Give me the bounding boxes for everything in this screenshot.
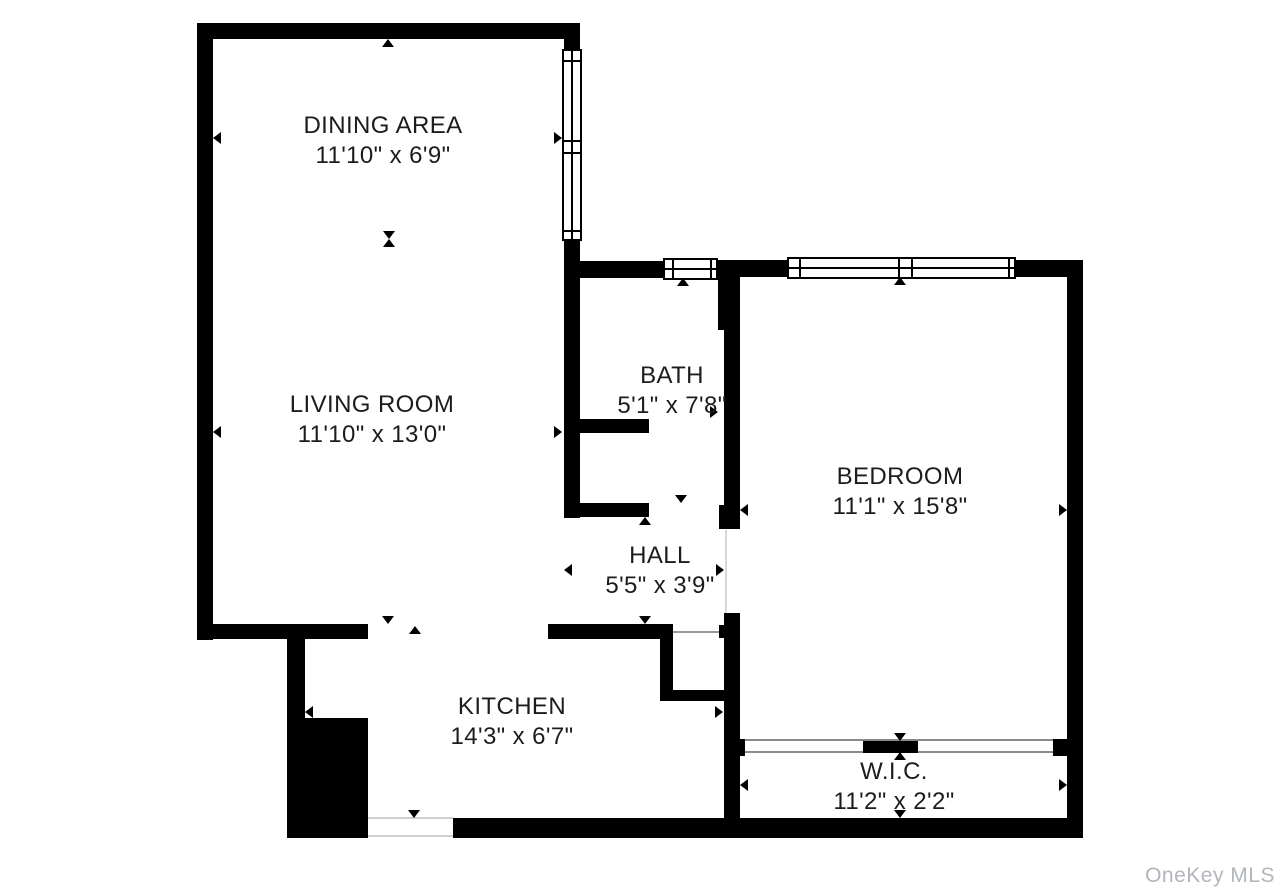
- room-label: LIVING ROOM11'10" x 13'0": [290, 390, 454, 450]
- room-name: W.I.C.: [833, 757, 954, 787]
- door-line: [368, 835, 453, 837]
- room-name: BEDROOM: [832, 462, 967, 492]
- wall: [197, 23, 213, 640]
- room-dims: 11'10" x 13'0": [290, 420, 454, 450]
- measure-arrow-down-icon: [675, 495, 687, 503]
- wall: [719, 505, 740, 529]
- wall: [1053, 739, 1068, 756]
- measure-arrow-right-icon: [554, 132, 562, 144]
- wall: [730, 739, 745, 756]
- floor-plan: OneKey MLS DINING AREA11'10" x 6'9"LIVIN…: [0, 0, 1280, 895]
- wall: [548, 624, 673, 639]
- measure-arrow-down-icon: [383, 231, 395, 239]
- window: [663, 258, 718, 280]
- measure-arrow-up-icon: [894, 277, 906, 285]
- room-label: HALL5'5" x 3'9": [605, 541, 714, 601]
- room-dims: 11'10" x 6'9": [303, 141, 462, 171]
- window: [787, 257, 1016, 279]
- room-dims: 5'5" x 3'9": [605, 571, 714, 601]
- room-name: HALL: [605, 541, 714, 571]
- window-glass-line: [789, 267, 1014, 269]
- wall: [287, 718, 368, 838]
- wall: [724, 613, 740, 838]
- measure-arrow-right-icon: [1059, 504, 1067, 516]
- measure-arrow-up-icon: [639, 517, 651, 525]
- measure-arrow-left-icon: [213, 426, 221, 438]
- measure-arrow-up-icon: [409, 626, 421, 634]
- room-dims: 11'1" x 15'8": [832, 492, 967, 522]
- measure-arrow-right-icon: [554, 426, 562, 438]
- wall: [287, 624, 305, 719]
- measure-arrow-down-icon: [639, 616, 651, 624]
- room-label: KITCHEN14'3" x 6'7": [450, 692, 573, 752]
- wall: [660, 638, 673, 690]
- window: [562, 49, 582, 241]
- wall: [564, 239, 580, 518]
- measure-arrow-left-icon: [305, 706, 313, 718]
- window-glass-line: [665, 268, 716, 270]
- measure-arrow-left-icon: [740, 504, 748, 516]
- wall: [453, 818, 1083, 838]
- measure-arrow-left-icon: [570, 406, 578, 418]
- room-label: BEDROOM11'1" x 15'8": [832, 462, 967, 522]
- watermark: OneKey MLS: [1145, 864, 1275, 888]
- wall: [197, 23, 580, 39]
- room-label: BATH5'1" x 7'8": [617, 361, 726, 421]
- room-dims: 11'2" x 2'2": [833, 787, 954, 817]
- room-name: DINING AREA: [303, 111, 462, 141]
- room-name: KITCHEN: [450, 692, 573, 722]
- measure-arrow-left-icon: [564, 564, 572, 576]
- room-dims: 14'3" x 6'7": [450, 722, 573, 752]
- measure-arrow-down-icon: [894, 733, 906, 741]
- measure-arrow-right-icon: [1059, 779, 1067, 791]
- window-glass-line: [571, 51, 573, 239]
- door-line: [725, 530, 727, 613]
- measure-arrow-up-icon: [383, 239, 395, 247]
- wall: [564, 419, 649, 433]
- room-label: W.I.C.11'2" x 2'2": [833, 757, 954, 817]
- wall: [718, 260, 740, 330]
- measure-arrow-down-icon: [382, 616, 394, 624]
- door-line: [673, 631, 720, 633]
- wall: [197, 624, 368, 639]
- room-label: DINING AREA11'10" x 6'9": [303, 111, 462, 171]
- wall: [863, 741, 918, 753]
- wall: [1067, 260, 1083, 838]
- wall: [660, 690, 730, 701]
- room-name: BATH: [617, 361, 726, 391]
- wall: [564, 503, 649, 517]
- measure-arrow-left-icon: [740, 779, 748, 791]
- measure-arrow-up-icon: [382, 39, 394, 47]
- measure-arrow-right-icon: [716, 564, 724, 576]
- room-name: LIVING ROOM: [290, 390, 454, 420]
- wall: [719, 625, 725, 638]
- measure-arrow-down-icon: [408, 810, 420, 818]
- room-dims: 5'1" x 7'8": [617, 391, 726, 421]
- measure-arrow-right-icon: [715, 706, 723, 718]
- measure-arrow-up-icon: [677, 278, 689, 286]
- measure-arrow-left-icon: [213, 132, 221, 144]
